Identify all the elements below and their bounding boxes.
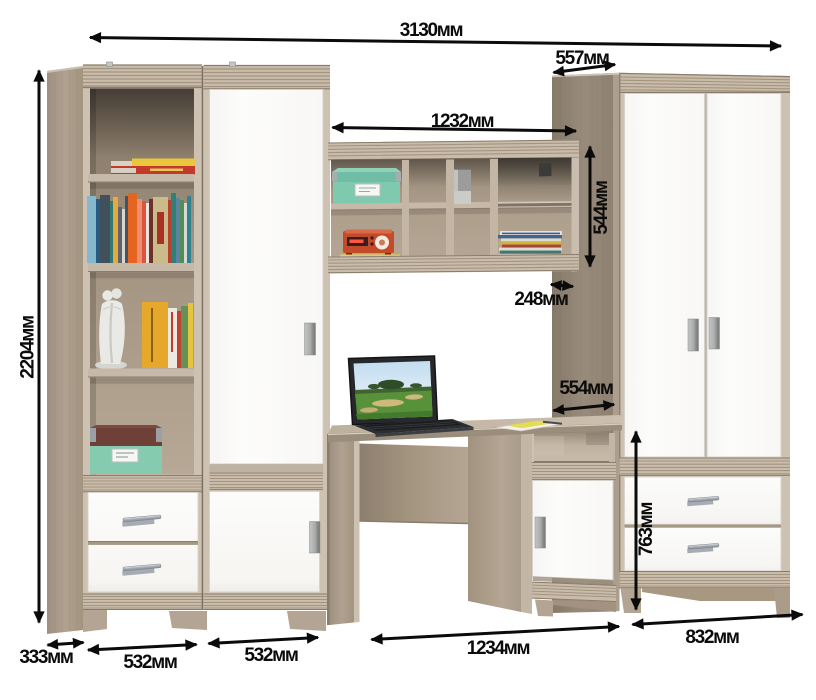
svg-text:544мм: 544мм	[591, 181, 612, 235]
svg-text:832мм: 832мм	[685, 627, 739, 648]
svg-text:2204мм: 2204мм	[18, 316, 39, 379]
svg-text:333мм: 333мм	[19, 647, 73, 668]
svg-text:248мм: 248мм	[514, 289, 568, 310]
svg-text:554мм: 554мм	[559, 378, 613, 399]
svg-text:1234мм: 1234мм	[467, 638, 530, 659]
svg-text:532мм: 532мм	[244, 645, 298, 666]
svg-text:532мм: 532мм	[123, 652, 177, 673]
svg-text:557мм: 557мм	[555, 48, 609, 69]
svg-text:1232мм: 1232мм	[431, 111, 494, 132]
svg-text:3130мм: 3130мм	[400, 20, 463, 41]
svg-text:763мм: 763мм	[636, 503, 657, 557]
